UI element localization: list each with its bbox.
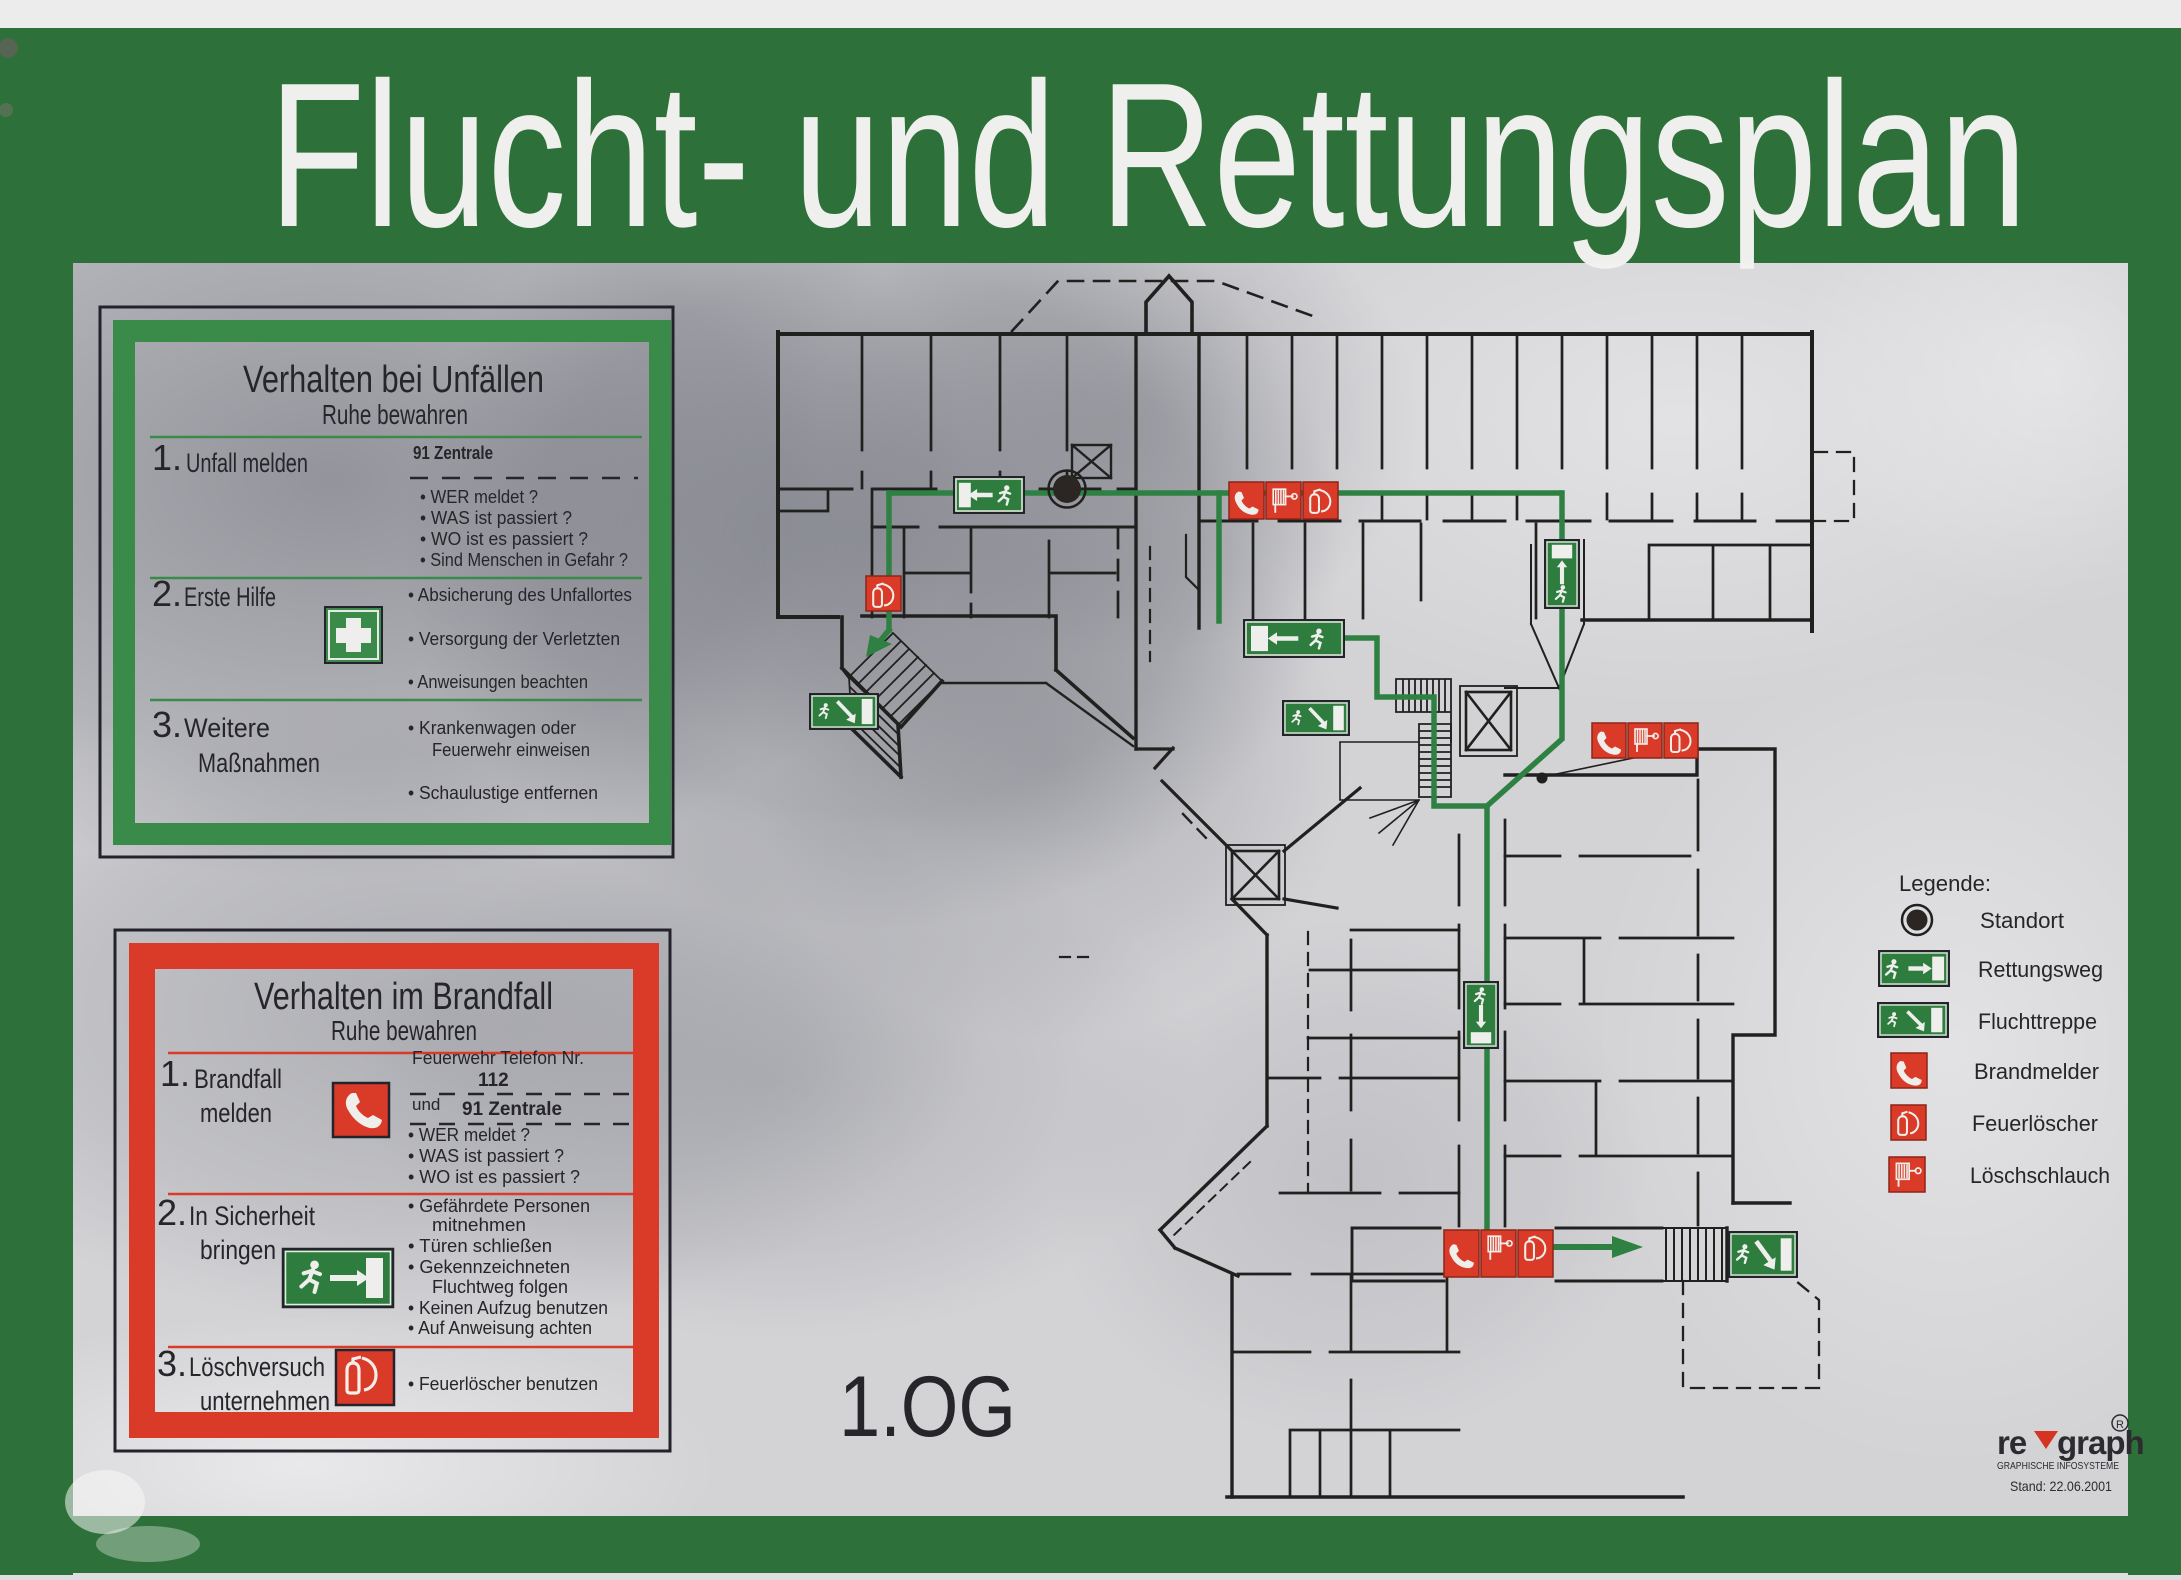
svg-text:Verhalten im Brandfall: Verhalten im Brandfall: [254, 976, 553, 1018]
svg-text:Feuerlöscher: Feuerlöscher: [1972, 1111, 2098, 1136]
svg-text:1.: 1.: [160, 1053, 190, 1094]
svg-text:Standort: Standort: [1980, 908, 2064, 933]
svg-text:Rettungsweg: Rettungsweg: [1978, 957, 2103, 982]
svg-text:Erste Hilfe: Erste Hilfe: [184, 582, 276, 612]
svg-text:Ruhe bewahren: Ruhe bewahren: [331, 1015, 477, 1046]
svg-text:Fluchttreppe: Fluchttreppe: [1978, 1009, 2097, 1034]
svg-text:2.: 2.: [152, 573, 182, 614]
svg-text:unternehmen: unternehmen: [200, 1386, 330, 1416]
svg-text:• Feuerlöscher benutzen: • Feuerlöscher benutzen: [408, 1374, 598, 1394]
svg-text:• Krankenwagen oder: • Krankenwagen oder: [408, 718, 576, 738]
svg-text:3.: 3.: [152, 704, 182, 745]
svg-text:• WER meldet ?: • WER meldet ?: [420, 487, 538, 507]
svg-text:• WO ist es passiert ?: • WO ist es passiert ?: [408, 1167, 580, 1187]
svg-text:1.: 1.: [152, 437, 182, 478]
svg-text:Weitere: Weitere: [184, 713, 270, 743]
svg-text:3.: 3.: [157, 1343, 187, 1384]
svg-text:Feuerwehr einweisen: Feuerwehr einweisen: [432, 740, 590, 760]
svg-text:• Türen schließen: • Türen schließen: [408, 1236, 552, 1256]
svg-text:• WAS ist passiert ?: • WAS ist passiert ?: [420, 508, 572, 528]
svg-text:• Schaulustige entfernen: • Schaulustige entfernen: [408, 783, 598, 803]
svg-text:• Anweisungen beachten: • Anweisungen beachten: [408, 672, 588, 692]
svg-text:Löschschlauch: Löschschlauch: [1970, 1163, 2110, 1188]
svg-text:• Versorgung der Verletzten: • Versorgung der Verletzten: [408, 629, 620, 649]
svg-text:• WAS ist passiert ?: • WAS ist passiert ?: [408, 1146, 564, 1166]
svg-text:• Gekennzeichneten: • Gekennzeichneten: [408, 1257, 570, 1277]
svg-text:Stand: 22.06.2001: Stand: 22.06.2001: [2010, 1478, 2112, 1494]
svg-text:In Sicherheit: In Sicherheit: [189, 1201, 315, 1231]
svg-text:• Absicherung des Unfallortes: • Absicherung des Unfallortes: [408, 585, 632, 605]
svg-text:• WO ist es passiert ?: • WO ist es passiert ?: [420, 529, 588, 549]
svg-text:Fluchtweg folgen: Fluchtweg folgen: [432, 1277, 568, 1297]
svg-text:graph: graph: [2057, 1424, 2144, 1461]
svg-text:Verhalten bei Unfällen: Verhalten bei Unfällen: [243, 359, 544, 401]
svg-text:re: re: [1997, 1424, 2027, 1461]
svg-text:GRAPHISCHE INFOSYSTEME: GRAPHISCHE INFOSYSTEME: [1997, 1460, 2119, 1472]
svg-text:1.OG: 1.OG: [839, 1359, 1016, 1455]
svg-text:Feuerwehr Telefon Nr.: Feuerwehr Telefon Nr.: [412, 1048, 584, 1068]
svg-text:Brandfall: Brandfall: [194, 1064, 282, 1094]
svg-text:• Auf Anweisung achten: • Auf Anweisung achten: [408, 1318, 592, 1338]
svg-text:Maßnahmen: Maßnahmen: [198, 748, 320, 778]
svg-text:Legende:: Legende:: [1899, 871, 1991, 896]
svg-text:und: und: [412, 1095, 440, 1114]
svg-text:mitnehmen: mitnehmen: [432, 1215, 526, 1235]
svg-text:Ruhe bewahren: Ruhe bewahren: [322, 399, 468, 430]
svg-text:91 Zentrale: 91 Zentrale: [413, 443, 493, 463]
svg-text:2.: 2.: [157, 1192, 187, 1233]
svg-text:• WER meldet ?: • WER meldet ?: [408, 1125, 530, 1145]
svg-text:• Sind Menschen in Gefahr ?: • Sind Menschen in Gefahr ?: [420, 550, 628, 570]
svg-text:112: 112: [478, 1070, 509, 1091]
svg-text:bringen: bringen: [200, 1235, 276, 1265]
svg-text:• Gefährdete Personen: • Gefährdete Personen: [408, 1196, 590, 1216]
svg-text:91 Zentrale: 91 Zentrale: [462, 1099, 562, 1120]
svg-text:Unfall melden: Unfall melden: [186, 448, 308, 478]
svg-text:R: R: [2116, 1419, 2124, 1431]
svg-text:Löschversuch: Löschversuch: [189, 1352, 325, 1382]
svg-text:melden: melden: [200, 1098, 272, 1128]
svg-text:Brandmelder: Brandmelder: [1974, 1059, 2099, 1084]
svg-text:• Keinen Aufzug benutzen: • Keinen Aufzug benutzen: [408, 1298, 608, 1318]
svg-text:Flucht- und Rettungsplan: Flucht- und Rettungsplan: [269, 40, 2027, 270]
